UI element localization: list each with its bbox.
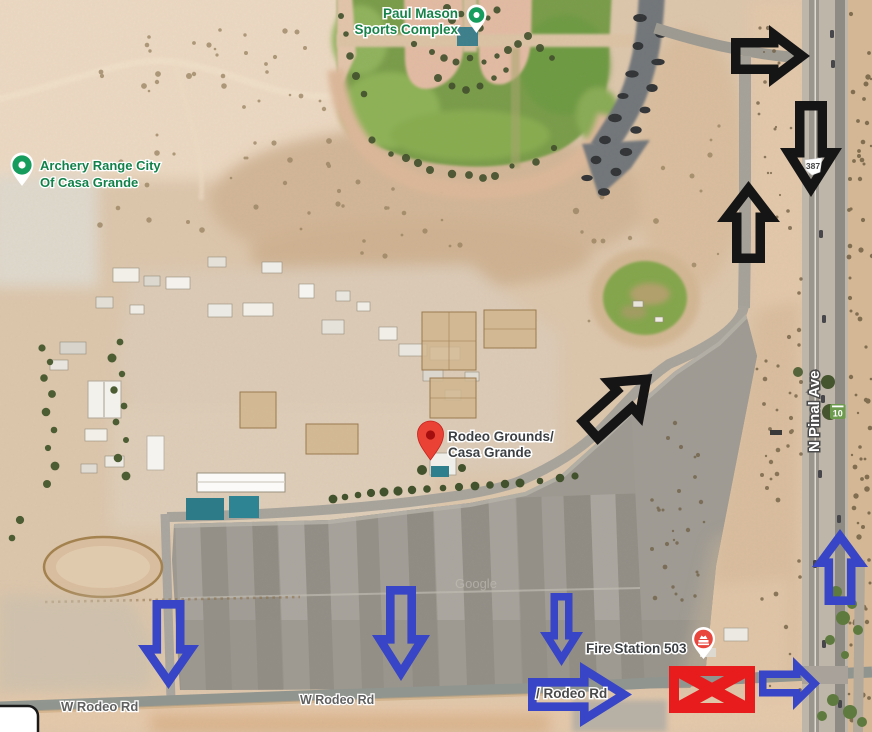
svg-text:/ Rodeo Rd: / Rodeo Rd: [536, 686, 607, 701]
svg-text:Casa Grande: Casa Grande: [448, 445, 532, 460]
svg-text:Rodeo Grounds/: Rodeo Grounds/: [448, 429, 554, 444]
svg-text:N Pinal Ave: N Pinal Ave: [806, 371, 823, 452]
svg-text:Paul Mason: Paul Mason: [383, 6, 458, 21]
svg-text:Sports Complex: Sports Complex: [354, 22, 458, 37]
svg-text:W Rodeo Rd: W Rodeo Rd: [300, 693, 374, 707]
svg-text:387: 387: [806, 161, 820, 171]
svg-text:10: 10: [833, 409, 843, 419]
svg-text:Fire Station 503: Fire Station 503: [586, 641, 687, 656]
svg-text:W Rodeo Rd: W Rodeo Rd: [61, 699, 138, 714]
svg-text:Archery Range City: Archery Range City: [40, 158, 161, 173]
svg-text:Of Casa Grande: Of Casa Grande: [40, 175, 138, 190]
